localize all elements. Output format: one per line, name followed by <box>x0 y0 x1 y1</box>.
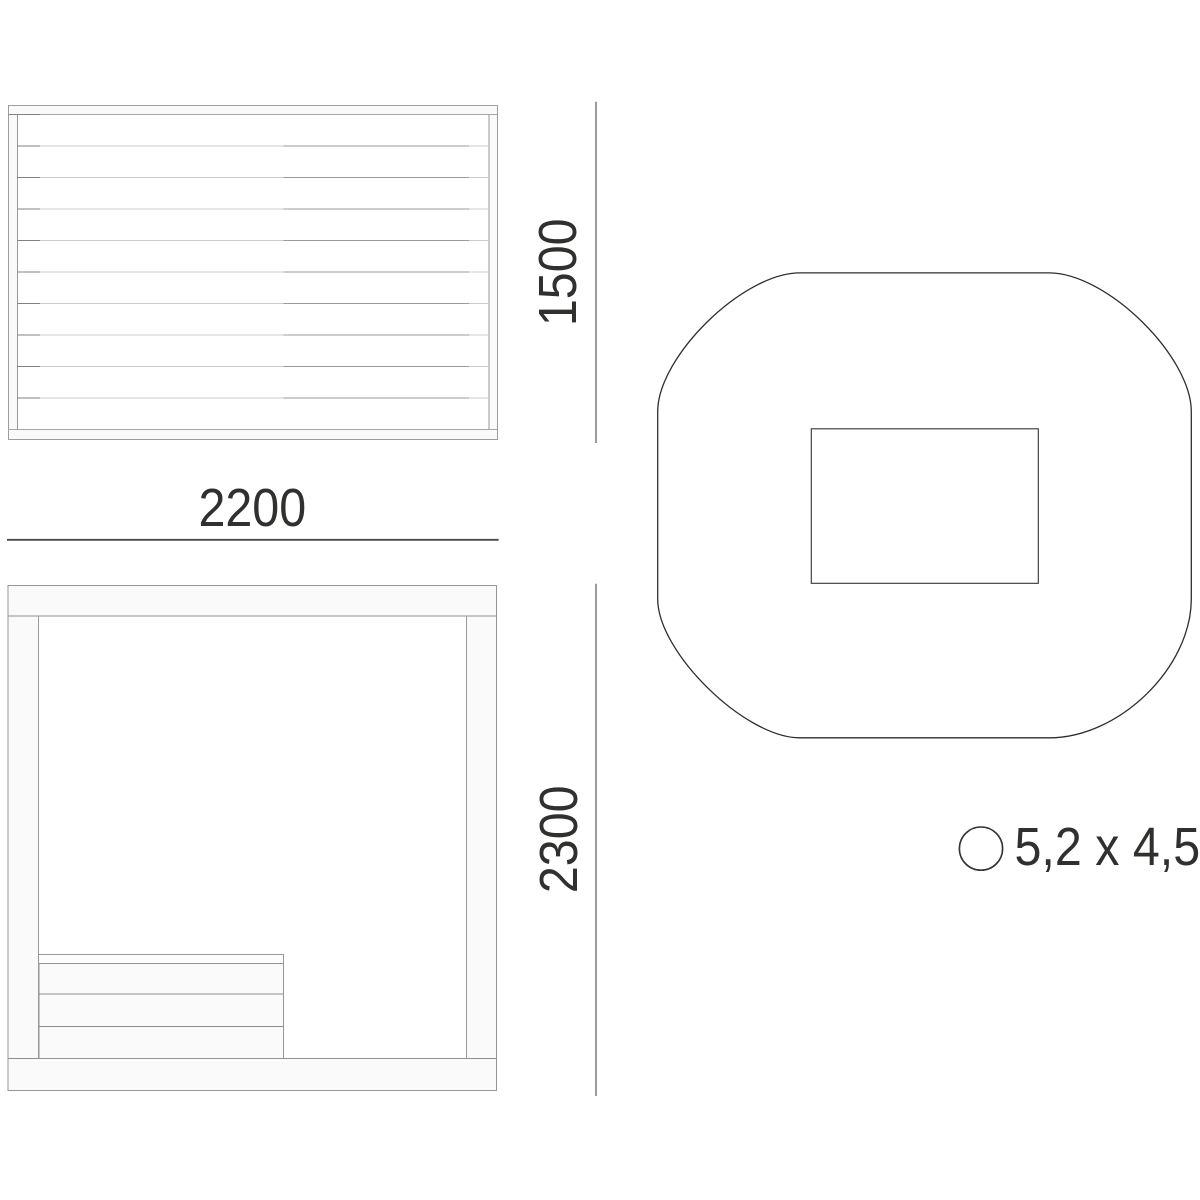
svg-text:5,2 x 4,5: 5,2 x 4,5 <box>1014 817 1200 877</box>
svg-text:2200: 2200 <box>198 478 306 538</box>
svg-text:1500: 1500 <box>528 218 588 326</box>
svg-text:2300: 2300 <box>529 785 589 893</box>
